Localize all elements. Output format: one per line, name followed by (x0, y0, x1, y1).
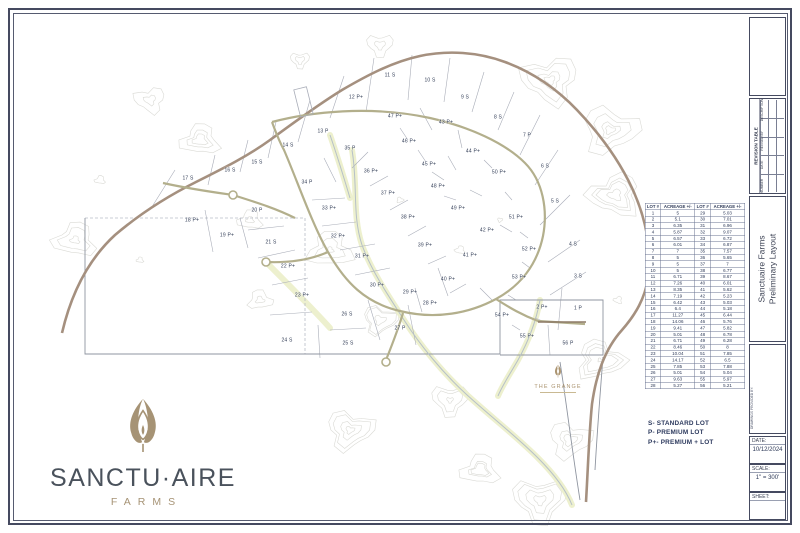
sheet-border-inner (13, 13, 788, 521)
drawing-sheet: 1 P2 P+3 S4 S5 S6 S7 P8 S9 S10 S11 S12 P… (0, 0, 800, 533)
